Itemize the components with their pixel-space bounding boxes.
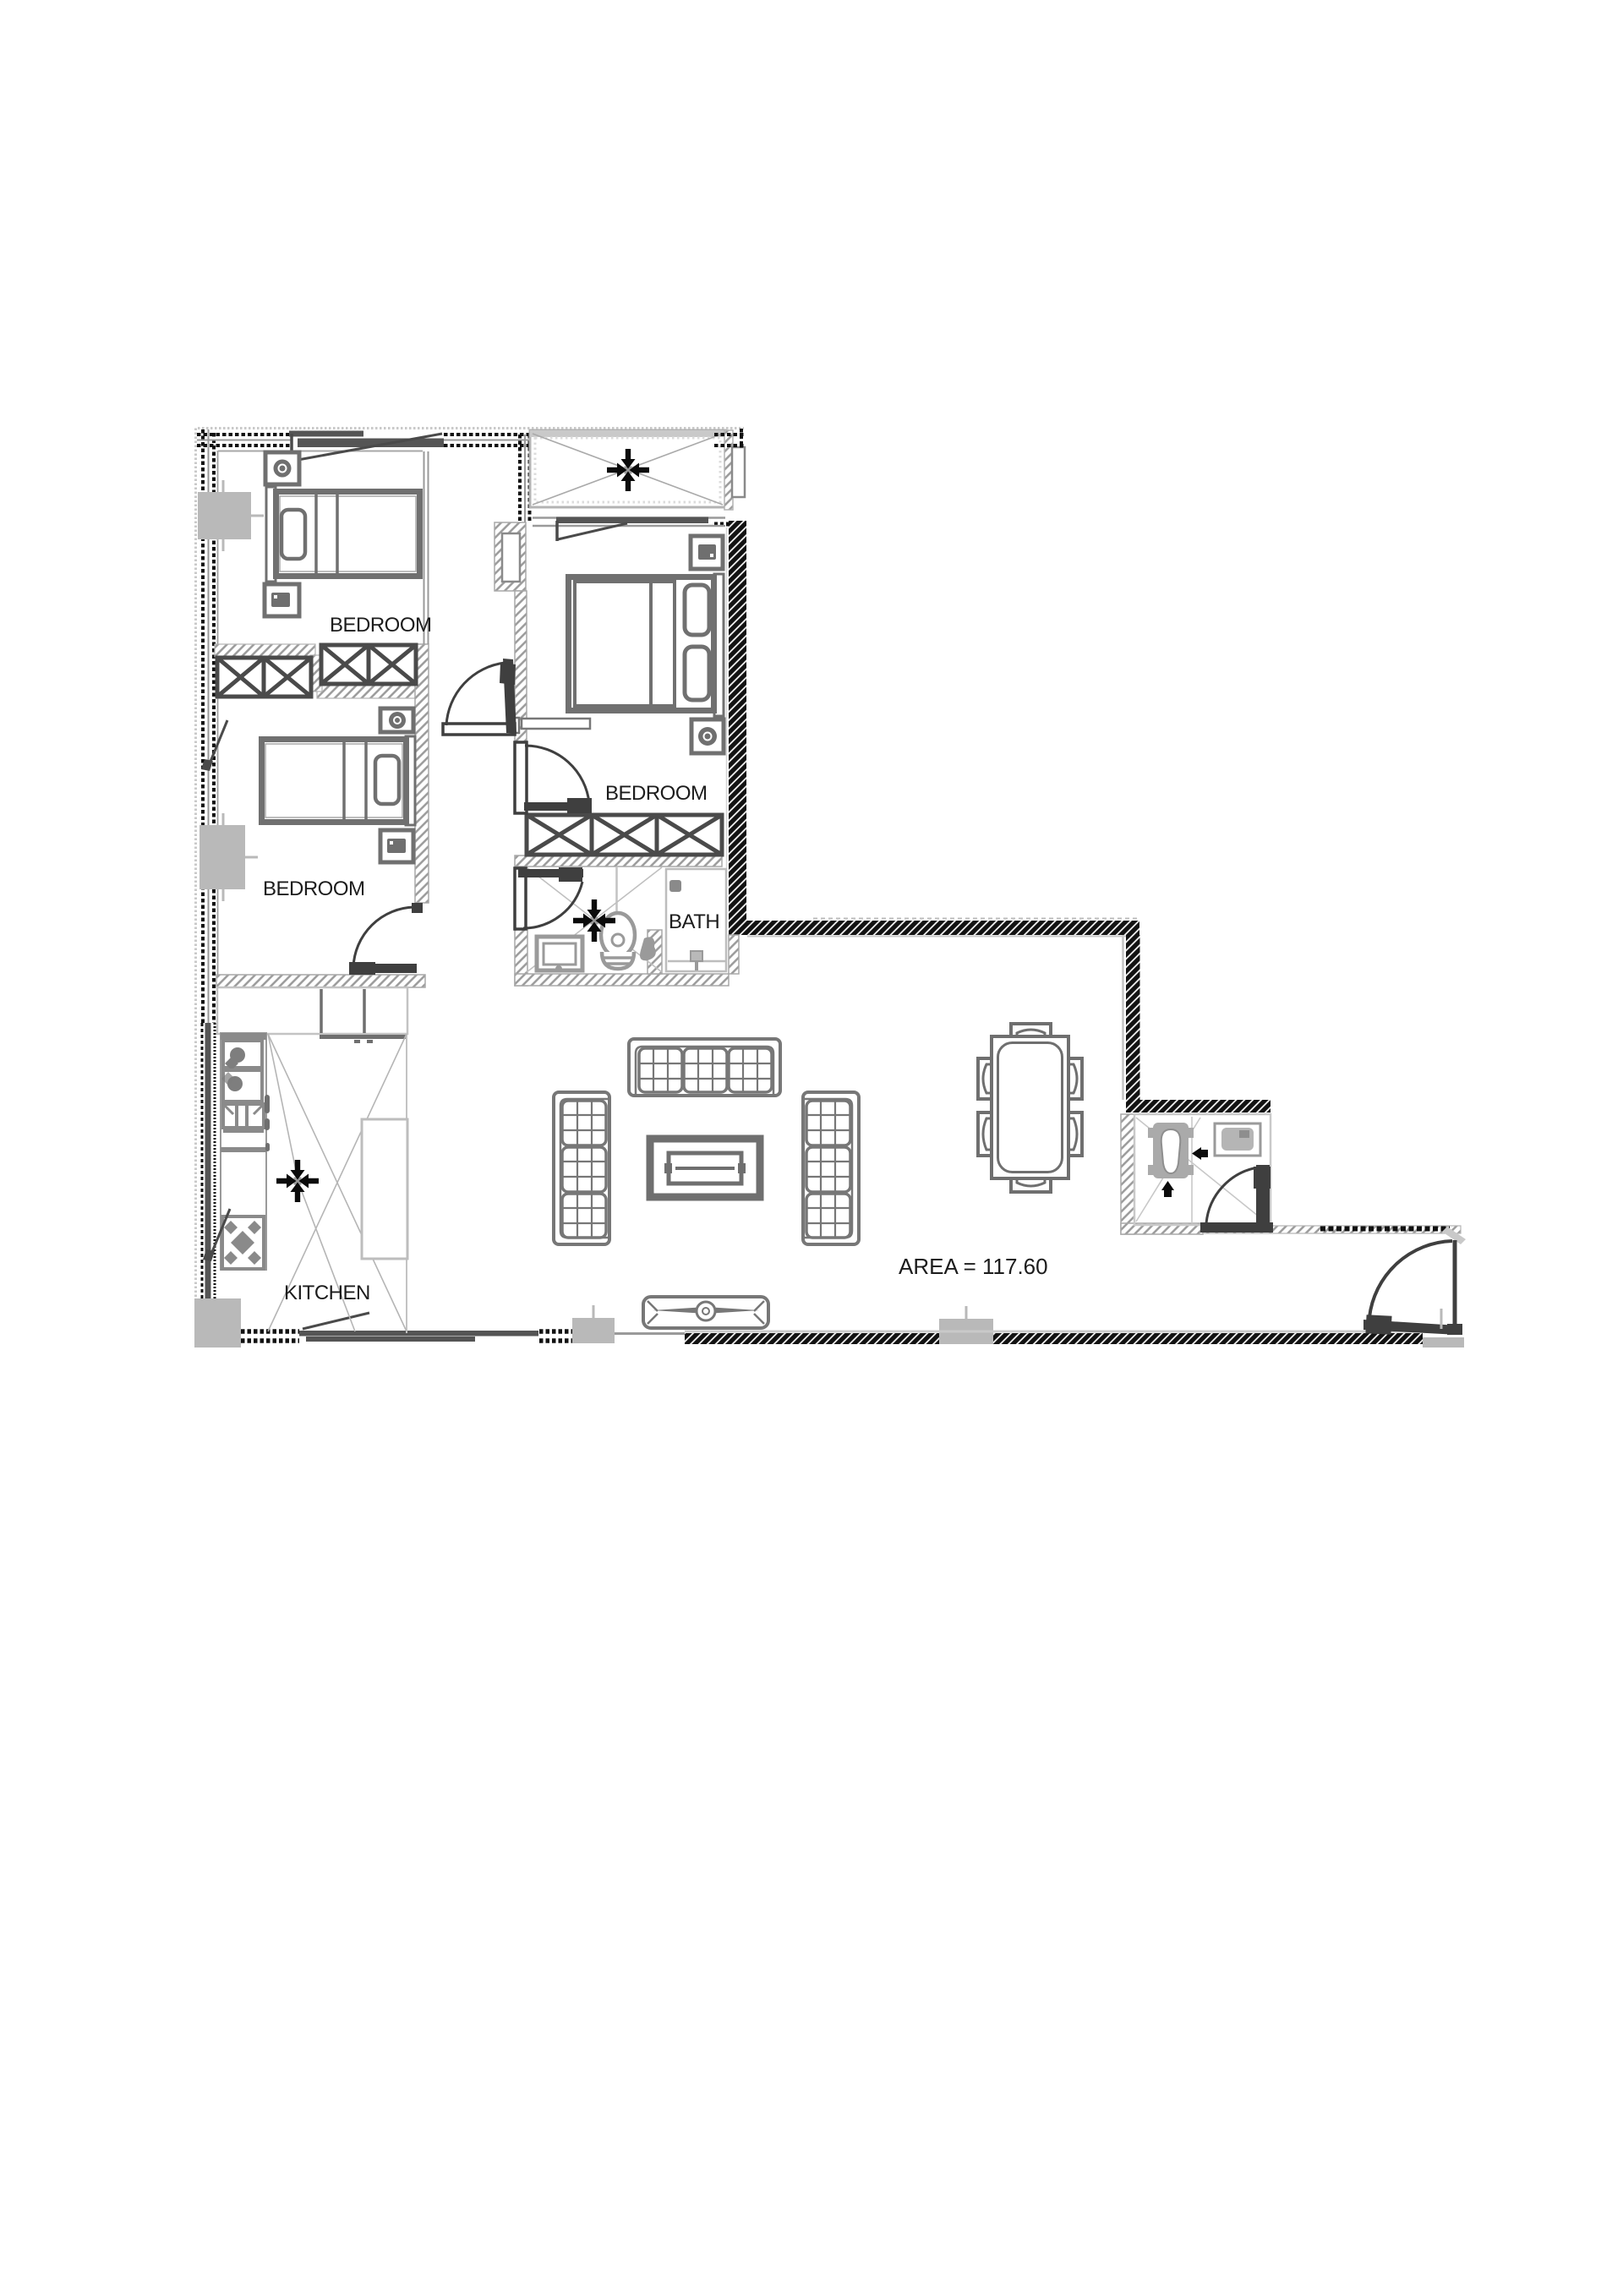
svg-text:BEDROOM: BEDROOM	[605, 782, 708, 805]
svg-text:BEDROOM: BEDROOM	[330, 614, 432, 637]
svg-text:BATH: BATH	[669, 910, 719, 933]
svg-text:BEDROOM: BEDROOM	[263, 877, 365, 900]
svg-text:AREA = 117.60: AREA = 117.60	[899, 1254, 1048, 1279]
svg-text:KITCHEN: KITCHEN	[284, 1282, 370, 1304]
